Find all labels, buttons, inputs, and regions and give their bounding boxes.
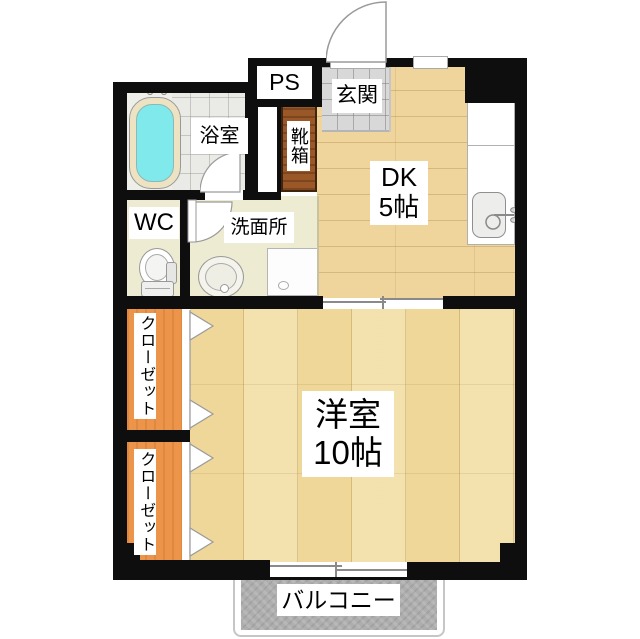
ps-label: PS — [257, 66, 312, 99]
bath-label: 浴室 — [191, 118, 248, 154]
living-label: 洋室 10帖 — [302, 391, 394, 477]
dk-label: DK 5帖 — [370, 161, 428, 225]
living-size: 10帖 — [313, 434, 383, 472]
washing-machine-pan-icon — [267, 248, 318, 296]
wall-segment — [113, 430, 190, 442]
entrance-door-arc-icon — [326, 0, 390, 66]
wc-label: WC — [129, 207, 179, 239]
closet2-door-icon — [182, 440, 216, 562]
dk-size: 5帖 — [379, 193, 419, 223]
closet1-label: クローゼット — [134, 313, 156, 419]
living-name: 洋室 — [315, 396, 381, 434]
kitchen-counter-divider — [467, 145, 515, 146]
sliding-door-tick — [382, 296, 384, 309]
sliding-door-line — [380, 298, 443, 300]
balcony-label: バルコニー — [277, 584, 400, 616]
wall-segment — [113, 82, 258, 93]
duct-space — [258, 107, 277, 192]
genkan-label: 玄関 — [332, 79, 382, 113]
wall-segment — [465, 58, 527, 103]
wall-segment — [313, 67, 322, 107]
floorplan: PS 玄関 浴室 靴箱 WC 洗面所 DK 5帖 — [0, 0, 640, 639]
wall-segment — [500, 543, 527, 580]
closet1-door-icon — [182, 308, 216, 432]
washroom-label: 洗面所 — [224, 212, 294, 243]
dk-name: DK — [381, 163, 417, 193]
bathtub-water — [136, 104, 174, 182]
toilet-base — [141, 281, 174, 297]
wall-segment — [113, 82, 127, 562]
genkan-side-line — [389, 67, 391, 132]
washroom-dk-boundary — [317, 196, 319, 296]
kitchen-faucet-icon — [484, 204, 518, 232]
vanity-drain — [220, 284, 229, 293]
wall-segment — [113, 296, 323, 309]
balcony-window-tick — [335, 562, 337, 577]
kitchen-window — [413, 56, 448, 69]
wall-segment — [515, 100, 527, 562]
toilet-base-line — [145, 288, 170, 289]
shoebox-label: 靴箱 — [287, 121, 310, 171]
washing-machine-drain — [278, 281, 289, 290]
genkan-step-line — [322, 130, 390, 132]
sliding-door-line — [323, 301, 386, 303]
wall-segment — [448, 58, 465, 67]
wall-segment — [113, 560, 270, 580]
balcony-window-line — [270, 565, 342, 567]
balcony-window-line — [336, 569, 407, 571]
bath-door-arc-icon — [200, 148, 246, 194]
closet2-label: クローゼット — [134, 449, 156, 555]
wall-segment — [443, 296, 527, 309]
